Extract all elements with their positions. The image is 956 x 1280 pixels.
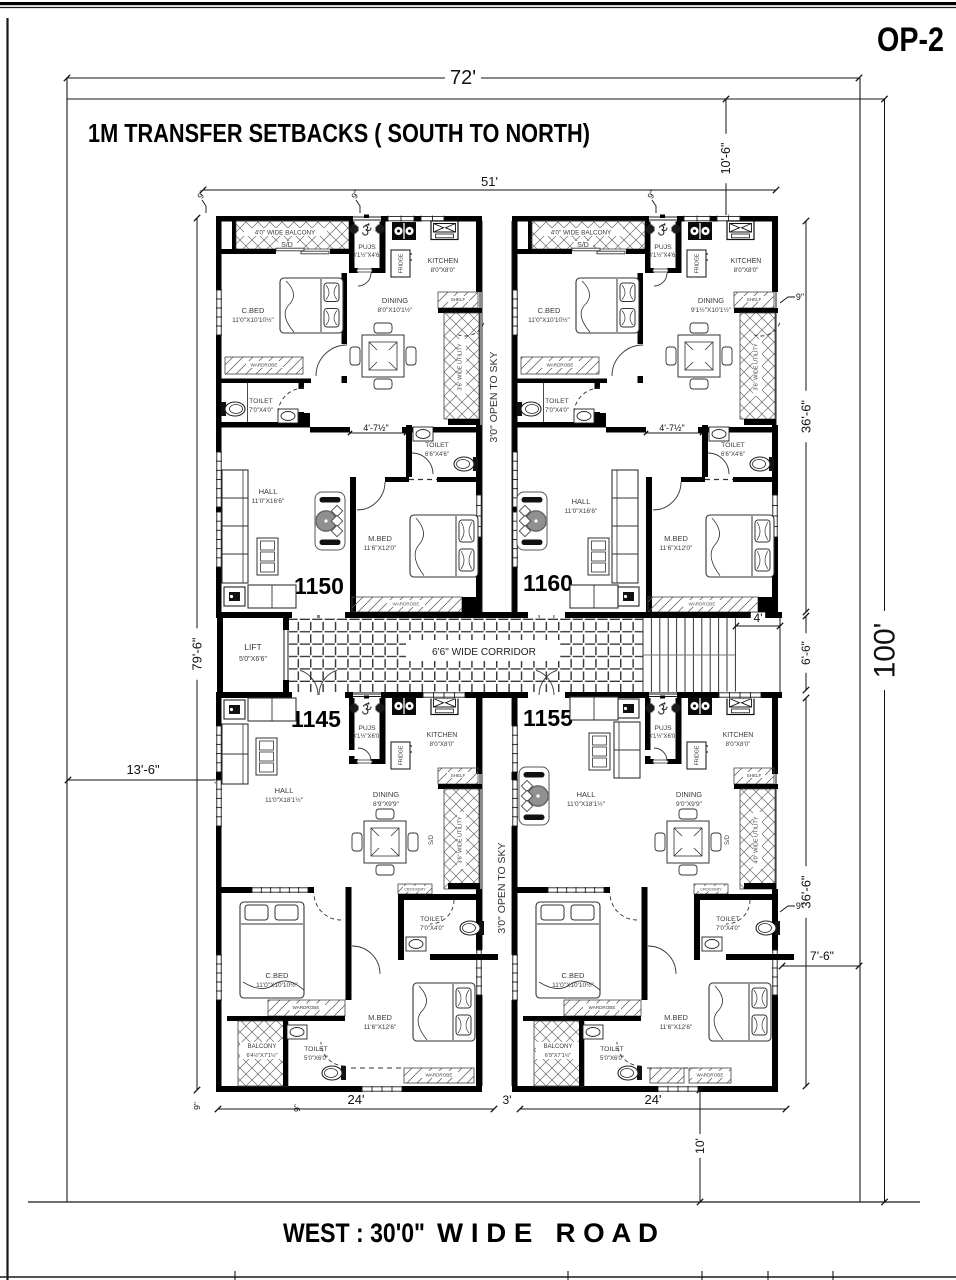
svg-text:WARDROBE: WARDROBE [426, 1073, 453, 1078]
svg-text:CROCKERY: CROCKERY [404, 888, 426, 892]
svg-text:8'0"X8'0": 8'0"X8'0" [734, 267, 759, 274]
svg-text:HALL: HALL [572, 497, 591, 506]
svg-text:8'0"X10'1½": 8'0"X10'1½" [378, 306, 414, 314]
svg-text:C.BED: C.BED [242, 306, 266, 315]
svg-text:FRIDGE: FRIDGE [695, 253, 701, 273]
svg-text:11'0"X16'6": 11'0"X16'6" [565, 508, 598, 515]
svg-text:PUJS: PUJS [358, 725, 376, 732]
svg-text:TOILET: TOILET [420, 916, 444, 923]
svg-text:11'6"X12'6": 11'6"X12'6" [364, 1024, 397, 1031]
svg-text:3'1½"X6'0": 3'1½"X6'0" [353, 733, 382, 740]
svg-text:3'6" WIDE UTILITY: 3'6" WIDE UTILITY [754, 343, 760, 390]
svg-text:1155: 1155 [523, 705, 573, 731]
svg-text:M.BED: M.BED [664, 1013, 688, 1022]
svg-text:24': 24' [348, 1092, 365, 1107]
svg-text:C.BED: C.BED [266, 971, 290, 980]
svg-text:WARDROBE: WARDROBE [293, 1005, 320, 1010]
svg-text:TOILET: TOILET [425, 442, 449, 449]
svg-text:KITCHEN: KITCHEN [427, 732, 458, 739]
svg-text:S/D: S/D [725, 834, 731, 845]
svg-text:WARDROBE: WARDROBE [547, 363, 574, 368]
svg-text:W I D E R O A D: W I D E R O A D [437, 1218, 658, 1248]
svg-text:WARDROBE: WARDROBE [589, 1005, 616, 1010]
svg-text:BALCONY: BALCONY [544, 1044, 573, 1050]
svg-text:WEST : 30'0": WEST : 30'0" [283, 1218, 425, 1248]
svg-text:PUJS: PUJS [358, 244, 376, 251]
svg-text:1160: 1160 [523, 570, 573, 596]
svg-text:SHELF: SHELF [451, 773, 466, 778]
svg-text:11'0"X16'6": 11'0"X16'6" [252, 498, 285, 505]
svg-text:1150: 1150 [294, 573, 344, 599]
svg-text:7'0"X4'0": 7'0"X4'0" [420, 926, 444, 932]
svg-text:S/D: S/D [429, 834, 435, 845]
svg-text:TOILET: TOILET [716, 916, 740, 923]
svg-text:3'6" WIDE UTILITY: 3'6" WIDE UTILITY [458, 816, 464, 863]
svg-text:6'6"X4'6": 6'6"X4'6" [721, 452, 745, 458]
svg-text:9": 9" [796, 901, 804, 911]
svg-text:6'6"X4'6": 6'6"X4'6" [425, 452, 449, 458]
svg-text:TOILET: TOILET [721, 442, 745, 449]
svg-text:DINING: DINING [373, 790, 399, 799]
svg-text:3'1½"X4'6": 3'1½"X4'6" [649, 252, 678, 259]
svg-text:PUJS: PUJS [654, 244, 672, 251]
svg-text:5'0"X6'6": 5'0"X6'6" [239, 656, 267, 663]
svg-text:51': 51' [481, 174, 498, 189]
svg-text:79'-6": 79'-6" [189, 637, 204, 671]
svg-text:3': 3' [503, 1093, 512, 1107]
svg-text:6'-6": 6'-6" [799, 641, 813, 665]
svg-text:4'0" WIDE BALCONY: 4'0" WIDE BALCONY [551, 230, 612, 237]
svg-text:9'0"X9'9": 9'0"X9'9" [676, 801, 703, 808]
svg-text:LIFT: LIFT [244, 642, 261, 652]
svg-text:24': 24' [645, 1092, 662, 1107]
svg-text:8'9"X9'9": 8'9"X9'9" [373, 801, 400, 808]
svg-text:5'0"X6'0": 5'0"X6'0" [304, 1056, 328, 1062]
svg-text:M.BED: M.BED [664, 534, 688, 543]
svg-text:6'6" WIDE CORRIDOR: 6'6" WIDE CORRIDOR [432, 646, 536, 658]
svg-text:M.BED: M.BED [368, 1013, 392, 1022]
svg-text:11'0"X18'1½": 11'0"X18'1½" [265, 796, 304, 804]
svg-text:9": 9" [796, 292, 804, 302]
svg-text:13'-6": 13'-6" [126, 762, 160, 777]
svg-text:FRIDGE: FRIDGE [399, 745, 405, 765]
svg-text:9": 9" [292, 1104, 302, 1112]
svg-text:11'0"X10'10½": 11'0"X10'10½" [552, 981, 594, 989]
svg-text:4'-7½": 4'-7½" [363, 423, 388, 433]
svg-text:11'0"X10'10½": 11'0"X10'10½" [528, 316, 570, 324]
svg-text:TOILET: TOILET [249, 398, 273, 405]
svg-text:BALCONY: BALCONY [248, 1044, 277, 1050]
svg-text:M.BED: M.BED [368, 534, 392, 543]
svg-text:4': 4' [754, 611, 763, 625]
svg-text:11'6"X12'6": 11'6"X12'6" [660, 1024, 693, 1031]
svg-text:4'0" WIDE UTILITY: 4'0" WIDE UTILITY [754, 816, 760, 863]
svg-text:11'0"X10'10½": 11'0"X10'10½" [232, 316, 274, 324]
svg-text:3'1½"X6'0": 3'1½"X6'0" [649, 733, 678, 740]
svg-text:FRIDGE: FRIDGE [399, 253, 405, 273]
svg-text:WARDROBE: WARDROBE [689, 602, 716, 607]
svg-text:DINING: DINING [382, 296, 408, 305]
svg-text:9": 9" [192, 1102, 202, 1110]
svg-text:TOILET: TOILET [304, 1046, 328, 1053]
svg-text:WARDROBE: WARDROBE [251, 363, 278, 368]
svg-text:KITCHEN: KITCHEN [731, 258, 762, 265]
svg-text:DINING: DINING [676, 790, 702, 799]
svg-text:HALL: HALL [275, 786, 294, 795]
svg-text:HALL: HALL [259, 487, 278, 496]
svg-text:WARDROBE: WARDROBE [393, 602, 420, 607]
svg-text:DINING: DINING [698, 296, 724, 305]
svg-text:CROCKERY: CROCKERY [700, 888, 722, 892]
svg-text:8'0"X8'0": 8'0"X8'0" [431, 267, 456, 274]
svg-text:8'0"X8'0": 8'0"X8'0" [726, 741, 751, 748]
svg-text:7'0"X4'0": 7'0"X4'0" [249, 408, 273, 414]
svg-text:OP-2: OP-2 [877, 21, 944, 59]
svg-text:11'0"X18'1½": 11'0"X18'1½" [567, 800, 606, 808]
svg-text:SHELF: SHELF [451, 297, 466, 302]
svg-text:WARDROBE: WARDROBE [697, 1073, 724, 1078]
svg-text:3'0" OPEN TO SKY: 3'0" OPEN TO SKY [488, 351, 500, 442]
svg-text:TOILET: TOILET [545, 398, 569, 405]
svg-text:4'-7½": 4'-7½" [659, 423, 684, 433]
svg-text:C.BED: C.BED [562, 971, 586, 980]
svg-text:6'4½"X7'1½": 6'4½"X7'1½" [246, 1052, 277, 1059]
svg-text:3'0" OPEN TO SKY: 3'0" OPEN TO SKY [496, 842, 508, 933]
svg-text:FRIDGE: FRIDGE [695, 745, 701, 765]
svg-text:4'0" WIDE BALCONY: 4'0" WIDE BALCONY [255, 230, 316, 237]
svg-text:11'6"X12'0": 11'6"X12'0" [660, 545, 693, 552]
svg-text:7'0"X4'0": 7'0"X4'0" [716, 926, 740, 932]
svg-text:11'0"X10'10½": 11'0"X10'10½" [256, 981, 298, 989]
svg-text:PUJS: PUJS [654, 725, 672, 732]
svg-text:SHELF: SHELF [747, 297, 762, 302]
svg-text:3'6" WIDE UTILITY: 3'6" WIDE UTILITY [458, 343, 464, 390]
svg-text:10': 10' [693, 1138, 707, 1154]
svg-text:10'-6": 10'-6" [719, 143, 733, 175]
svg-text:HALL: HALL [577, 790, 596, 799]
svg-text:72': 72' [450, 67, 476, 89]
svg-text:KITCHEN: KITCHEN [723, 732, 754, 739]
svg-text:SHELF: SHELF [747, 773, 762, 778]
svg-text:7'-6": 7'-6" [810, 949, 834, 963]
svg-text:6'9"X7'1½": 6'9"X7'1½" [545, 1052, 572, 1059]
svg-text:TOILET: TOILET [600, 1046, 624, 1053]
svg-text:KITCHEN: KITCHEN [428, 258, 459, 265]
svg-text:1145: 1145 [291, 706, 341, 732]
svg-text:5'0"X6'0": 5'0"X6'0" [600, 1056, 624, 1062]
svg-text:3'1½"X4'6": 3'1½"X4'6" [353, 252, 382, 259]
svg-text:7'0"X4'0": 7'0"X4'0" [545, 408, 569, 414]
svg-text:9'1½"X10'1½": 9'1½"X10'1½" [691, 306, 732, 314]
svg-text:100': 100' [868, 623, 901, 679]
svg-text:36'-6": 36'-6" [798, 400, 813, 434]
svg-text:8'0"X8'0": 8'0"X8'0" [430, 741, 455, 748]
svg-text:C.BED: C.BED [538, 306, 562, 315]
svg-text:11'6"X12'0": 11'6"X12'0" [364, 545, 397, 552]
svg-text:1M TRANSFER SETBACKS ( SOUTH: 1M TRANSFER SETBACKS ( SOUTH TO NORTH) [88, 118, 590, 148]
